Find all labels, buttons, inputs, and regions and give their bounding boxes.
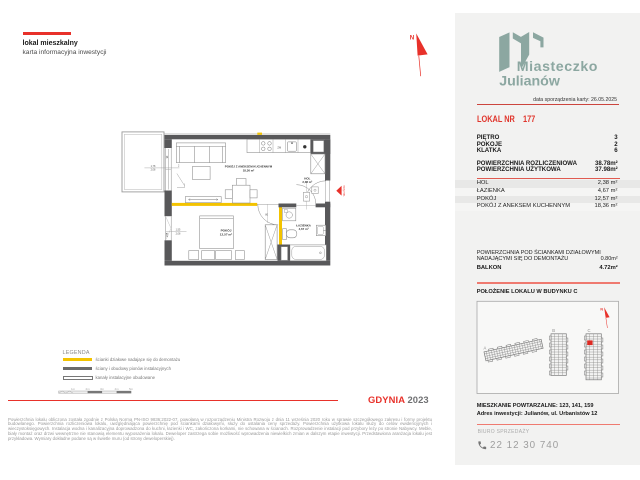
svg-text:2,08: 2,08 — [176, 232, 181, 235]
svg-text:A: A — [484, 346, 487, 351]
svg-text:Julianów: Julianów — [499, 74, 561, 90]
svg-text:18,36 m²: 18,36 m² — [243, 168, 255, 172]
svg-text:4m: 4m — [115, 387, 120, 391]
svg-text:1,55: 1,55 — [176, 229, 181, 232]
svg-text:1,55: 1,55 — [167, 232, 169, 237]
svg-text:C: C — [588, 328, 591, 333]
svg-text:3m: 3m — [100, 387, 105, 391]
svg-text:1m: 1m — [71, 387, 76, 391]
svg-text:N: N — [600, 308, 603, 312]
svg-text:2,38 m²: 2,38 m² — [302, 180, 312, 184]
svg-text:12,57 m²: 12,57 m² — [220, 232, 232, 236]
svg-text:ZM: ZM — [277, 145, 281, 149]
svg-text:B: B — [552, 328, 555, 333]
svg-text:4,67 m²: 4,67 m² — [299, 227, 309, 231]
svg-text:5m: 5m — [129, 387, 134, 391]
svg-text:Miasteczko: Miasteczko — [517, 59, 598, 75]
svg-text:N: N — [410, 35, 415, 42]
svg-text:2,08: 2,08 — [151, 169, 156, 172]
svg-text:WEJŚCIE: WEJŚCIE — [343, 185, 346, 196]
svg-text:80: 80 — [265, 214, 268, 217]
svg-text:2m: 2m — [86, 387, 91, 391]
svg-text:1,78: 1,78 — [151, 165, 156, 168]
svg-text:2: 2 — [178, 165, 180, 168]
